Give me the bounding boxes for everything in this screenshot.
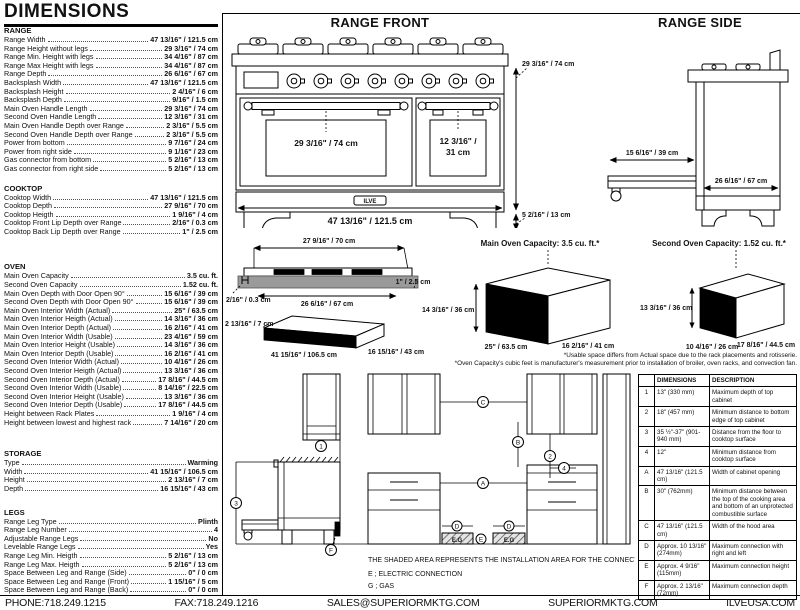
table-cell-dimension: 47 13/16" (121.5 cm): [655, 466, 710, 486]
column-divider: [222, 13, 223, 595]
callout-d: D: [504, 521, 514, 531]
legend-electric: E ; ELECTRIC CONNECTION: [368, 571, 462, 578]
spec-label: Space Between Leg and Range (Back): [4, 586, 128, 595]
range-side-title: RANGE SIDE: [605, 15, 795, 30]
spec-row: Space Between Leg and Range (Back) 0" / …: [4, 586, 218, 595]
footer-brand: ILVEUSA.COM: [726, 597, 795, 609]
leader-dots: [123, 224, 170, 225]
side-front-leg: [702, 210, 726, 226]
leader-dots: [131, 583, 166, 584]
leader-dots: [90, 50, 162, 51]
leader-dots: [115, 320, 163, 321]
callout-c: C: [478, 397, 489, 408]
leader-dots: [80, 557, 167, 558]
door-open-depth-label: 15 6/16" / 39 cm: [626, 150, 678, 157]
leader-dots: [25, 490, 158, 491]
leader-dots: [54, 207, 162, 208]
table-row: C 47 13/16" (121.5 cm) Width of the hood…: [639, 521, 797, 541]
spec-label: Height between lowest and highest rack: [4, 419, 131, 428]
installation-diagram: E.G E.G 1 3 F C B 2 4 A D D E THE SHADED…: [228, 372, 635, 592]
leader-dots: [80, 286, 181, 287]
leader-dots: [64, 101, 170, 102]
svg-text:A: A: [481, 481, 486, 488]
spec-section-oven: OVEN Main Oven Capacity 3.5 cu. ft. Seco…: [4, 262, 218, 427]
table-header-row: DIMENSIONS DESCRIPTION: [639, 375, 797, 387]
spec-label: Depth: [4, 485, 23, 494]
second-oven-width-label: 10 4/16" / 26 cm: [686, 344, 738, 351]
leader-dots: [74, 153, 166, 154]
left-base-cabinet: [368, 473, 440, 544]
table-cell-id: 1: [639, 387, 655, 407]
eg-label: E.G: [504, 538, 515, 544]
spec-section-storage: STORAGE Type Warming Width 41 15/16" / 1…: [4, 449, 218, 493]
display: [244, 72, 278, 88]
table-body: 1 13" (330 mm) Maximum depth of top cabi…: [639, 387, 797, 600]
range-height-label: 29 3/16" / 74 cm: [522, 61, 574, 68]
callout-1: 1: [316, 441, 327, 452]
callout-a: A: [478, 478, 489, 489]
callout-d: D: [452, 521, 462, 531]
leader-dots: [123, 233, 181, 234]
table-cell-description: Minimum distance to bottom edge of top c…: [710, 407, 797, 427]
leader-dots: [126, 127, 164, 128]
spec-rows-oven: Main Oven Capacity 3.5 cu. ft. Second Ov…: [4, 272, 218, 427]
range-width-label: 47 13/16" / 121.5 cm: [328, 216, 413, 226]
leader-dots: [27, 481, 166, 482]
leader-dots: [78, 548, 204, 549]
side-body: [696, 82, 780, 210]
table-row: D Approx. 10 13/16" (274mm) Maximum conn…: [639, 540, 797, 560]
footer: PHONE:718.249.1215 FAX:718.249.1216 SALE…: [0, 596, 800, 610]
table-cell-id: 2: [639, 407, 655, 427]
second-oven-capacity-title: Second Oven Capacity: 1.52 cu. ft.*: [640, 239, 798, 248]
svg-text:D: D: [455, 524, 460, 531]
svg-text:D: D: [507, 524, 512, 531]
leader-dots: [82, 566, 167, 567]
main-oven-capacity-drawing: 14 3/16" / 36 cm 25" / 63.5 cm 16 2/16" …: [420, 248, 640, 352]
side-back-leg: [750, 210, 774, 226]
table-cell-description: Maximum connection height: [710, 560, 797, 580]
spec-value: 5 2/16" / 13 cm: [168, 165, 218, 174]
svg-text:2: 2: [548, 454, 552, 461]
table-row: 1 13" (330 mm) Maximum depth of top cabi…: [639, 387, 797, 407]
leader-dots: [124, 406, 156, 407]
cooktop-storage-drawing: 27 9/16" / 70 cm 2/16" / 0.3 cm 26 6/16"…: [224, 236, 440, 360]
table-cell-id: A: [639, 466, 655, 486]
second-oven-depth-label: 17 8/16" / 44.5 cm: [737, 342, 795, 349]
leader-dots: [123, 372, 162, 373]
svg-text:4: 4: [562, 466, 566, 473]
table-cell-description: Maximum depth of top cabinet: [710, 387, 797, 407]
leader-dots: [24, 473, 148, 474]
table-cell-id: E: [639, 560, 655, 580]
leader-dots: [117, 346, 162, 347]
footer-email: SALES@SUPERIORMKTG.COM: [327, 597, 480, 609]
leader-dots: [66, 93, 171, 94]
leader-dots: [135, 136, 165, 137]
svg-text:F: F: [329, 548, 333, 555]
callout-f: F: [326, 545, 337, 556]
burner-row: [238, 38, 503, 54]
svg-text:3: 3: [234, 501, 238, 508]
leader-dots: [115, 355, 162, 356]
main-handle-label: 29 3/16" / 74 cm: [294, 138, 358, 148]
dimension-table: DIMENSIONS DESCRIPTION 1 13" (330 mm) Ma…: [638, 374, 797, 600]
capacity-note-2: *Oven Capacity's cubic feet is manufactu…: [420, 360, 797, 368]
callout-e: E: [476, 534, 486, 544]
footer-phone: PHONE:718.249.1215: [5, 597, 106, 609]
range-side-drawing: 15 6/16" / 39 cm 26 6/16" / 67 cm: [602, 48, 798, 236]
legend-gas: G ; GAS: [368, 583, 394, 590]
range-front-drawing: 29 3/16" / 74 cm 12 3/16" / 31 cm ILVE 4…: [228, 28, 600, 228]
capacity-note-1: *Usable space differs from Actual space …: [420, 352, 797, 360]
callout-b: B: [513, 437, 524, 448]
storage-width-label: 41 15/16" / 106.5 cm: [271, 352, 337, 359]
section-heading-oven: OVEN: [4, 262, 218, 271]
table-cell-description: Minimum distance between the top of the …: [710, 486, 797, 521]
second-oven-height-label: 13 3/16" / 36 cm: [640, 305, 692, 312]
leader-dots: [98, 118, 162, 119]
cooktop-body-band: [238, 276, 418, 288]
right-leg: [450, 212, 496, 228]
leader-dots: [127, 295, 163, 296]
cooktop-hatch: [280, 457, 338, 462]
left-leg: [244, 212, 290, 228]
spec-rows-cooktop: Cooktop Width 47 13/16" / 121.5 cm Cookt…: [4, 194, 218, 237]
table-cell-id: 3: [639, 427, 655, 447]
table-cell-description: Maximum connection with right and left: [710, 540, 797, 560]
table-header-dimensions: DIMENSIONS: [655, 375, 710, 387]
eg-label: E.G: [452, 538, 463, 544]
table-cell-dimension: 18" (457 mm): [655, 407, 710, 427]
svg-text:C: C: [481, 400, 486, 407]
callout-2: 2: [545, 451, 556, 462]
spec-value: 0" / 0 cm: [188, 586, 218, 595]
leader-dots: [129, 574, 187, 575]
leader-dots: [96, 67, 163, 68]
spec-rows-range: Range Width 47 13/16" / 121.5 cm Range H…: [4, 36, 218, 174]
connection-block: [335, 522, 340, 536]
leader-dots: [67, 144, 167, 145]
leader-dots: [96, 58, 163, 59]
leader-dots: [69, 531, 212, 532]
spec-row: Cooktop Back Lip Depth over Range 1" / 2…: [4, 228, 218, 237]
footer-site: SUPERIORMKTG.COM: [548, 597, 657, 609]
leader-dots: [48, 75, 162, 76]
svg-text:1: 1: [319, 444, 323, 451]
installation-note: THE SHADED AREA REPRESENTS THE INSTALLAT…: [368, 557, 635, 564]
cooktop-band: [232, 54, 508, 66]
leader-dots: [112, 312, 172, 313]
leader-dots: [123, 389, 156, 390]
table-cell-dimension: 12": [655, 446, 710, 466]
table-row: 3 35 ½"-37" (901-940 mm) Distance from t…: [639, 427, 797, 447]
spec-rows-storage: Type Warming Width 41 15/16" / 106.5 cm …: [4, 459, 218, 493]
footer-fax: FAX:718.249.1216: [174, 597, 258, 609]
table-row: 4 12" Minimum distance from cooktop surf…: [639, 446, 797, 466]
table-cell-description: Minimum distance from cooktop surface: [710, 446, 797, 466]
leader-dots: [53, 199, 148, 200]
table-row: E Approx. 4 9/16" (115mm) Maximum connec…: [639, 560, 797, 580]
table-cell-description: Distance from the floor to cooktop surfa…: [710, 427, 797, 447]
spec-row: Gas connector from right side 5 2/16" / …: [4, 165, 218, 174]
leader-dots: [93, 161, 166, 162]
main-oven-height-label: 14 3/16" / 36 cm: [422, 307, 474, 314]
table-cell-dimension: Approx. 4 9/16" (115mm): [655, 560, 710, 580]
main-oven-depth-label: 16 2/16" / 41 cm: [562, 343, 614, 350]
table-cell-id: D: [639, 540, 655, 560]
top-border: [222, 13, 800, 14]
table-cell-dimension: 13" (330 mm): [655, 387, 710, 407]
leader-dots: [121, 363, 162, 364]
leader-dots: [48, 41, 149, 42]
table-header-id: [639, 375, 655, 387]
storage-depth-label: 16 15/16" / 43 cm: [368, 349, 424, 356]
spec-section-range: RANGE Range Width 47 13/16" / 121.5 cm R…: [4, 26, 218, 174]
leader-dots: [130, 591, 186, 592]
table-cell-description: Width of cabinet opening: [710, 466, 797, 486]
spec-label: Gas connector from right side: [4, 165, 98, 174]
leader-dots: [115, 338, 163, 339]
leader-dots: [56, 216, 171, 217]
spec-rows-legs: Range Leg Type Plinth Range Leg Number 4…: [4, 518, 218, 595]
right-base-cabinet: [527, 465, 597, 544]
table-cell-id: 4: [639, 446, 655, 466]
install-open-door: [242, 520, 278, 540]
table-cell-id: B: [639, 486, 655, 521]
second-oven-capacity-drawing: 13 3/16" / 36 cm 10 4/16" / 26 cm 17 8/1…: [640, 248, 798, 352]
table-cell-dimension: 30" (762mm): [655, 486, 710, 521]
storage-height-label: 2 13/16" / 7 cm: [225, 321, 273, 328]
leader-dots: [80, 540, 206, 541]
spec-value: 16 15/16" / 43 cm: [160, 485, 218, 494]
capacity-notes: *Usable space differs from Actual space …: [420, 352, 797, 368]
table-row: 2 18" (457 mm) Minimum distance to botto…: [639, 407, 797, 427]
leader-dots: [100, 170, 166, 171]
section-heading-storage: STORAGE: [4, 449, 218, 458]
leader-dots: [63, 84, 148, 85]
main-oven-width-label: 25" / 63.5 cm: [485, 344, 528, 351]
spec-row: Depth 16 15/16" / 43 cm: [4, 485, 218, 494]
leader-dots: [96, 415, 170, 416]
svg-text:E: E: [479, 537, 484, 544]
table-row: A 47 13/16" (121.5 cm) Width of cabinet …: [639, 466, 797, 486]
leader-dots: [122, 381, 156, 382]
svg-text:B: B: [516, 440, 520, 447]
second-handle-label-2: 31 cm: [446, 147, 471, 157]
cooktop-overhang: [688, 70, 788, 82]
second-handle-label-1: 12 3/16" /: [439, 136, 477, 146]
table-cell-dimension: 47 13/16" (121.5 cm): [655, 521, 710, 541]
leader-dots: [59, 523, 196, 524]
spec-value: 1" / 2.5 cm: [182, 228, 218, 237]
install-front-view: [368, 374, 630, 544]
spec-column: RANGE Range Width 47 13/16" / 121.5 cm R…: [4, 24, 218, 595]
burner-profile: [702, 64, 760, 70]
table-cell-dimension: 35 ½"-37" (901-940 mm): [655, 427, 710, 447]
table-cell-id: C: [639, 521, 655, 541]
spec-section-cooktop: COOKTOP Cooktop Width 47 13/16" / 121.5 …: [4, 184, 218, 237]
spec-value: 7 14/16" / 20 cm: [164, 419, 218, 428]
front-lip-label: 2/16" / 0.3 cm: [226, 297, 271, 304]
table-header-description: DESCRIPTION: [710, 375, 797, 387]
spec-label: Cooktop Back Lip Depth over Range: [4, 228, 121, 237]
leader-dots: [22, 464, 186, 465]
spec-row: Height between lowest and highest rack 7…: [4, 419, 218, 428]
storage-drawer-box: [264, 316, 384, 348]
callout-4: 4: [559, 463, 570, 474]
table-cell-description: Width of the hood area: [710, 521, 797, 541]
cooktop-width-label: 27 9/16" / 70 cm: [303, 238, 355, 245]
main-oven-capacity-title: Main Oven Capacity: 3.5 cu. ft.*: [440, 239, 640, 248]
section-heading-cooktop: COOKTOP: [4, 184, 218, 193]
spec-section-legs: LEGS Range Leg Type Plinth Range Leg Num…: [4, 508, 218, 595]
table-row: B 30" (762mm) Minimum distance between t…: [639, 486, 797, 521]
open-door: [608, 176, 696, 201]
leader-dots: [136, 303, 163, 304]
section-heading-range: RANGE: [4, 26, 218, 35]
backsplash: [770, 50, 780, 70]
leg-height-label: 5 2/16" / 13 cm: [522, 212, 570, 219]
leader-dots: [113, 329, 162, 330]
leader-dots: [90, 110, 163, 111]
brand-logo-icon: ILVE: [364, 199, 377, 205]
cooktop-inner-label: 26 6/16" / 67 cm: [301, 301, 353, 308]
side-depth-label: 26 6/16" / 67 cm: [715, 178, 767, 185]
leader-dots: [133, 424, 162, 425]
callout-3: 3: [231, 498, 242, 509]
section-heading-legs: LEGS: [4, 508, 218, 517]
leader-dots: [71, 277, 185, 278]
leader-dots: [126, 398, 162, 399]
table-cell-dimension: Approx. 10 13/16" (274mm): [655, 540, 710, 560]
